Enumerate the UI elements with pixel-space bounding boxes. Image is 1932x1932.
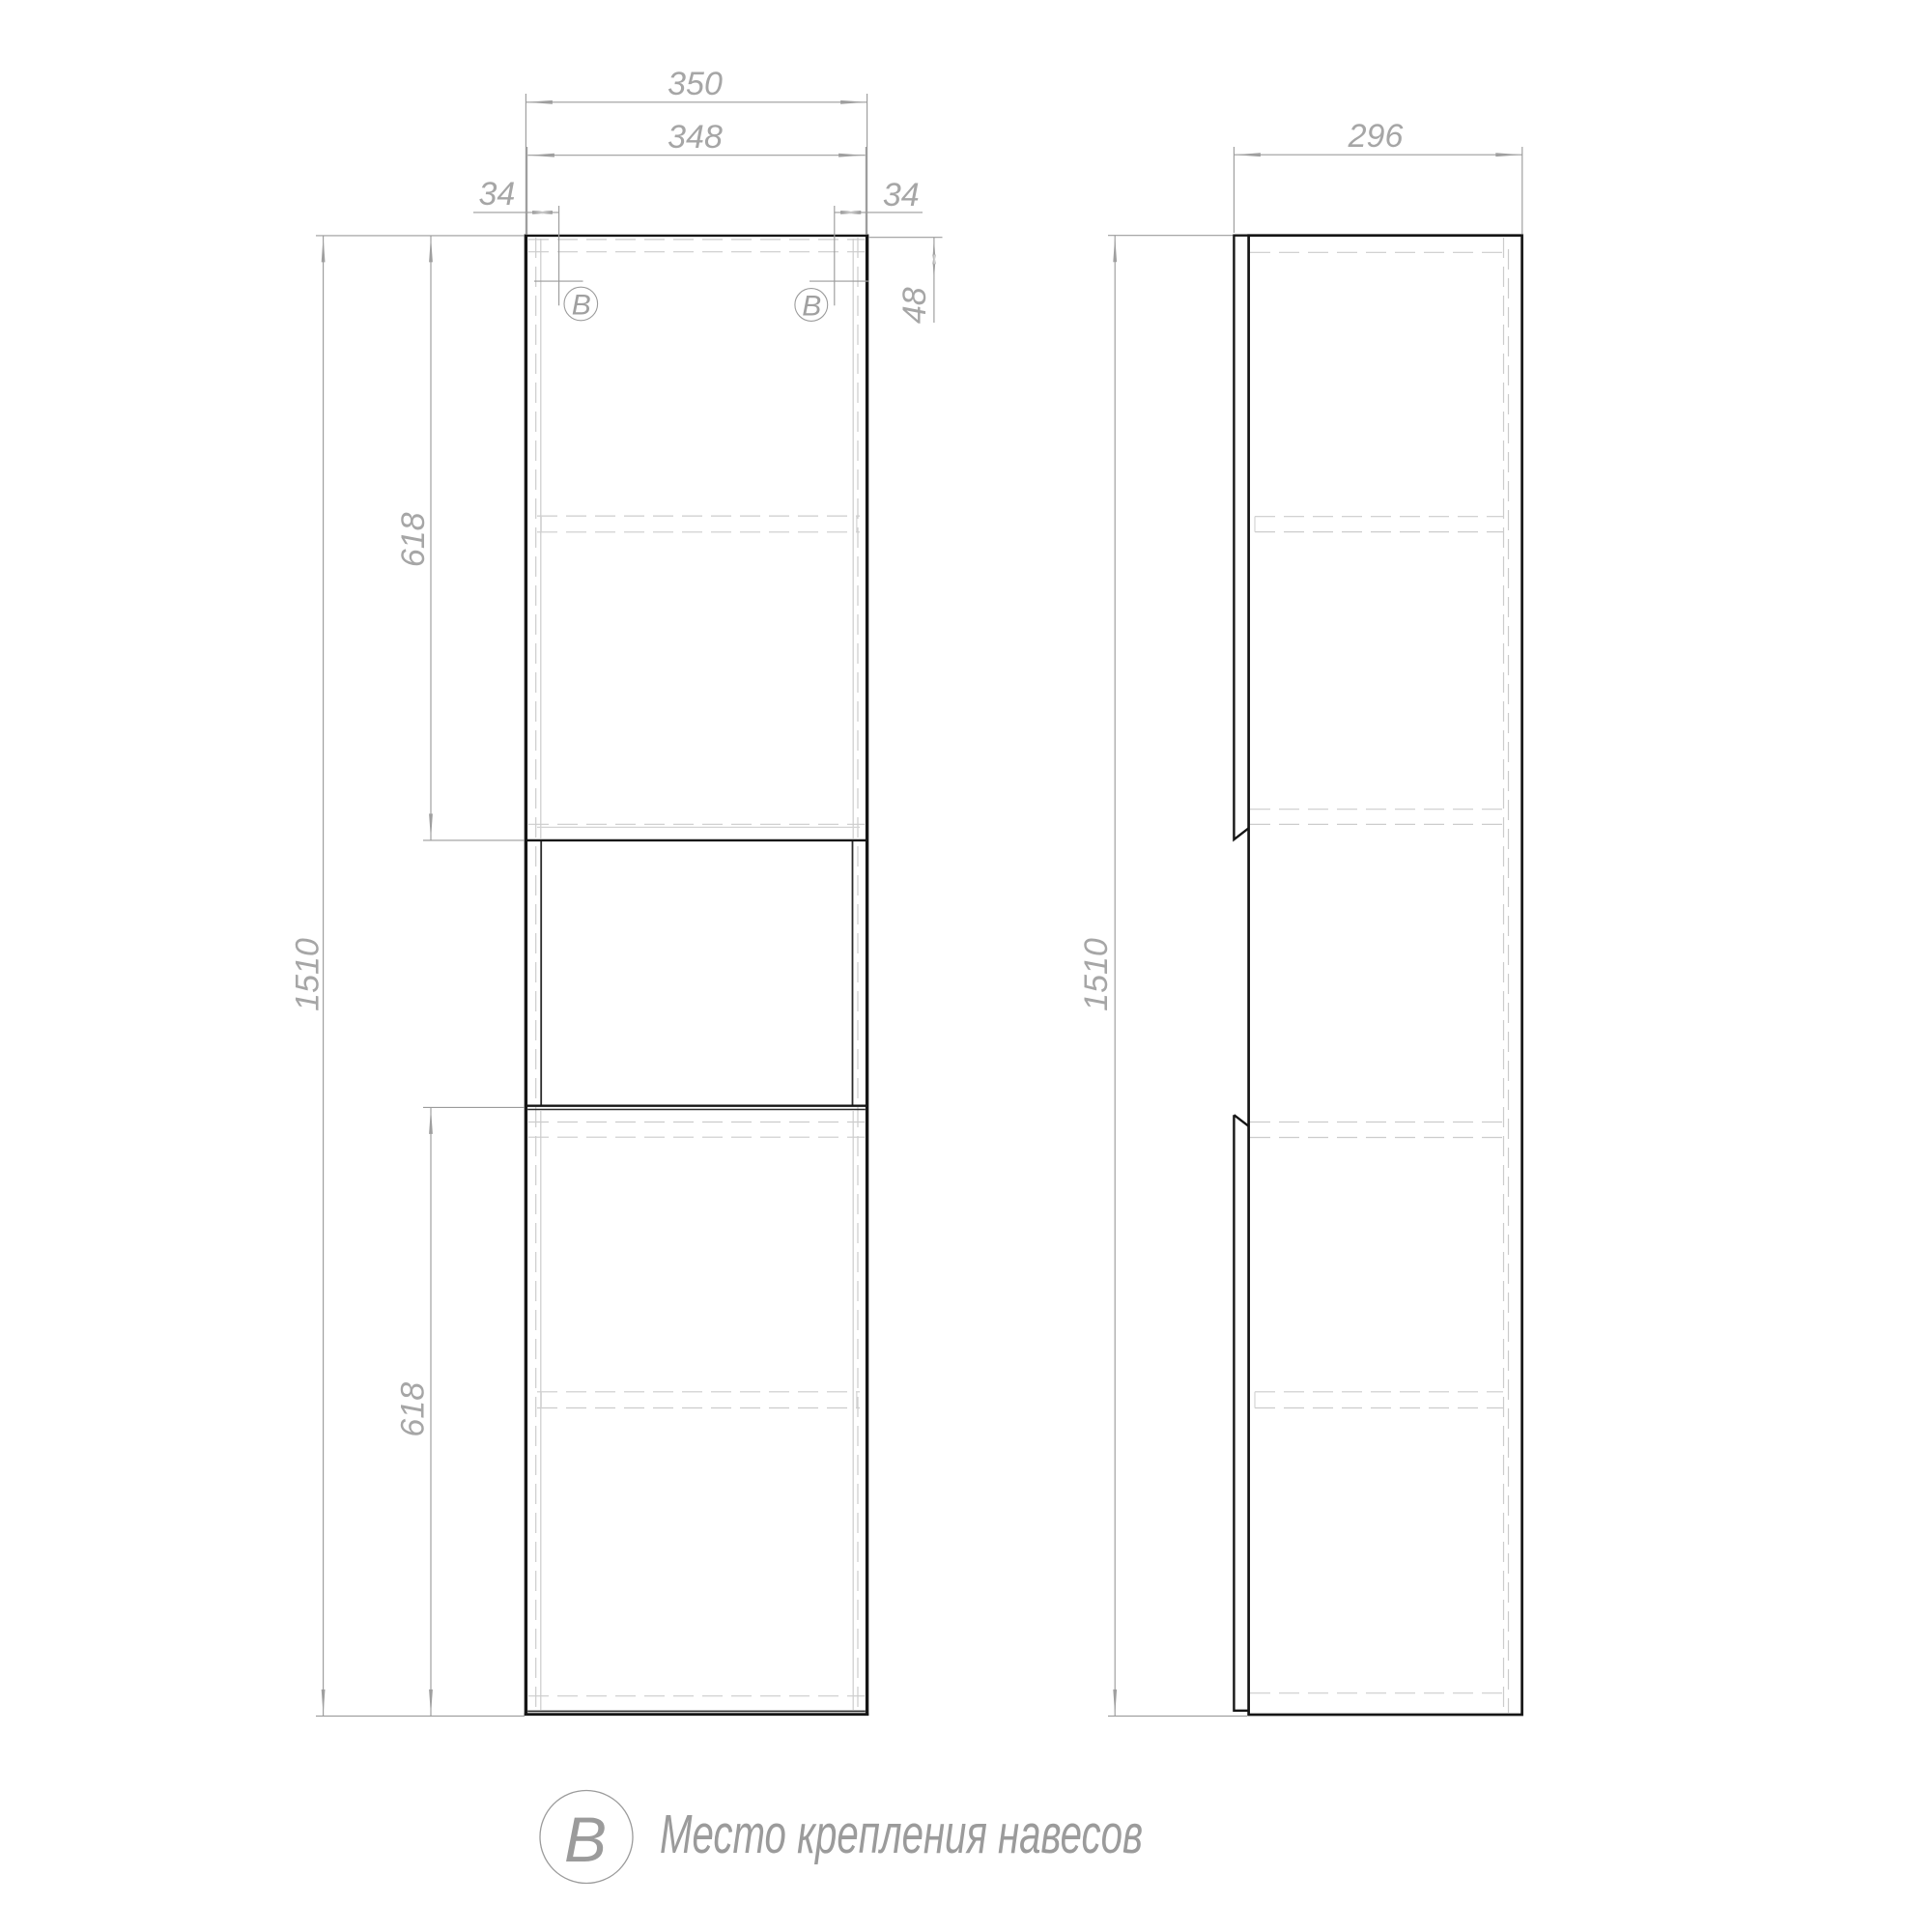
svg-text:618: 618 bbox=[394, 1382, 431, 1437]
svg-text:1510: 1510 bbox=[290, 938, 327, 1011]
svg-text:В: В bbox=[564, 1804, 607, 1875]
svg-text:Место крепления навесов: Место крепления навесов bbox=[660, 1804, 1143, 1865]
svg-text:1510: 1510 bbox=[1078, 938, 1115, 1011]
svg-text:В: В bbox=[572, 290, 591, 322]
svg-text:34: 34 bbox=[478, 176, 515, 213]
svg-text:34: 34 bbox=[883, 177, 920, 213]
svg-text:348: 348 bbox=[668, 119, 723, 156]
svg-text:296: 296 bbox=[1348, 118, 1404, 155]
svg-text:618: 618 bbox=[395, 512, 432, 567]
svg-text:В: В bbox=[802, 291, 821, 323]
svg-text:350: 350 bbox=[668, 66, 723, 102]
svg-text:48: 48 bbox=[896, 287, 933, 324]
